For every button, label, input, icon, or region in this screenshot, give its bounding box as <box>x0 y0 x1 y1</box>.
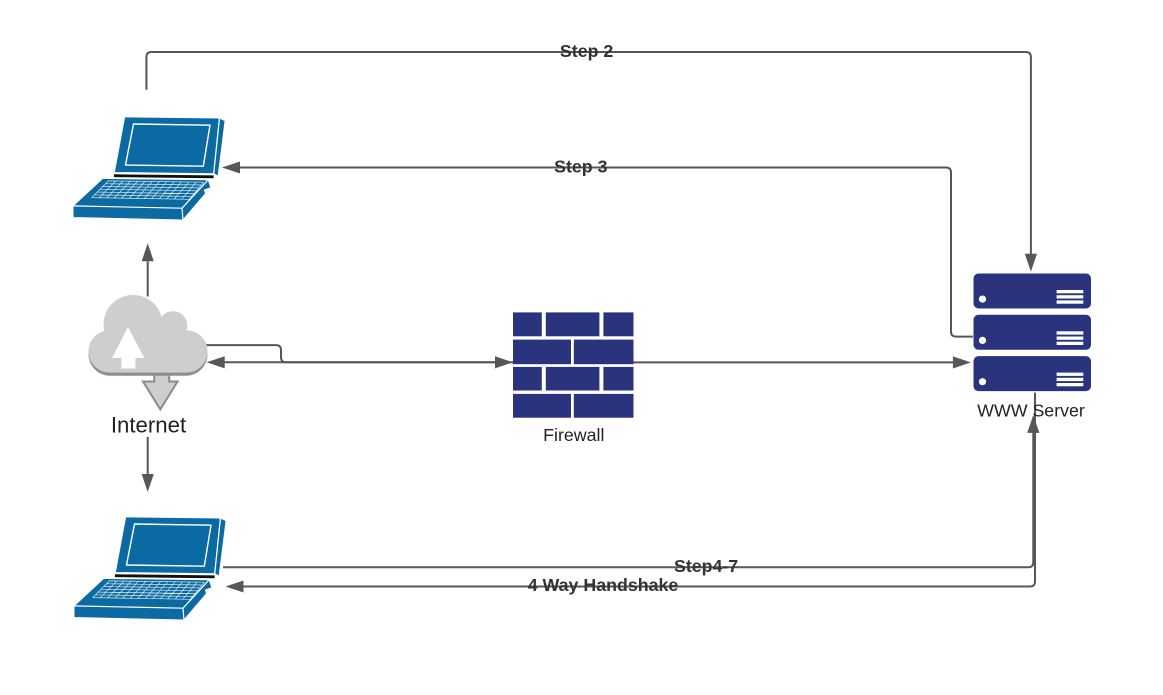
svg-text:Internet: Internet <box>111 413 186 438</box>
svg-text:4 Way Handshake: 4 Way Handshake <box>528 575 679 595</box>
svg-text:WWW Server: WWW Server <box>977 401 1085 421</box>
svg-text:Step4-7: Step4-7 <box>674 556 738 576</box>
svg-text:Step 2: Step 2 <box>560 41 613 61</box>
svg-text:Step 3: Step 3 <box>554 157 607 177</box>
svg-text:Firewall: Firewall <box>543 425 604 445</box>
